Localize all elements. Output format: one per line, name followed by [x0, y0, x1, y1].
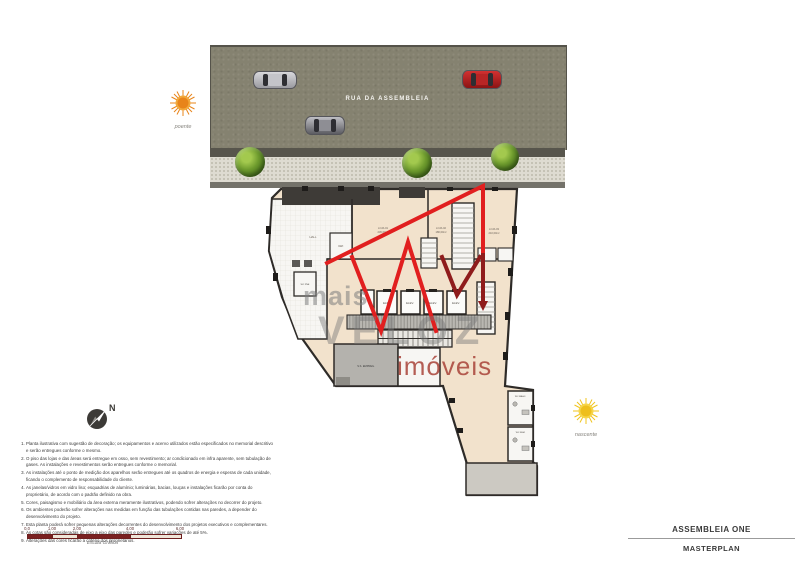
service-room-label: S.S. EMPREG. — [357, 364, 375, 368]
scale-tick: 4,00 — [126, 526, 134, 531]
sun-west-label: poente — [160, 124, 206, 130]
titleblock-project: ASSEMBLEIA ONE — [628, 525, 795, 534]
note-item: Planta ilustrativa com sugestão de decor… — [26, 441, 274, 455]
scale-segment — [77, 534, 132, 539]
room-small — [498, 248, 513, 261]
bench — [292, 260, 300, 267]
elevator-label: ELEV. — [429, 301, 437, 305]
equipment — [336, 377, 350, 385]
masterplan-sheet: RUA DA ASSEMBLEIA — [0, 0, 800, 564]
stair-shaft — [452, 203, 474, 269]
watermark-veloz: VELOZ — [318, 309, 486, 354]
car-red-icon — [462, 70, 502, 89]
note-item: As instalações até o ponto de medição do… — [26, 470, 274, 484]
scale-segment — [52, 534, 79, 539]
watermark-imoveis: imóveis — [397, 351, 492, 382]
svg-text:LOJA 01: LOJA 01 — [378, 226, 389, 230]
sun-east-icon — [563, 395, 609, 427]
stair-small — [421, 238, 437, 268]
bench — [304, 260, 312, 267]
svg-text:LOJA 03: LOJA 03 — [489, 227, 500, 231]
car-silver-icon — [253, 71, 297, 89]
elevator-label: ELEV. — [406, 301, 414, 305]
facade-band — [282, 187, 380, 205]
tree-icon — [491, 143, 519, 171]
annex-block — [466, 463, 537, 495]
street-name-label: RUA DA ASSEMBLEIA — [210, 96, 565, 102]
titleblock-sheet: MASTERPLAN — [628, 544, 795, 553]
sun-west-icon — [160, 87, 206, 119]
scale-segment — [130, 534, 182, 539]
north-label: N — [109, 403, 116, 413]
note-item: Os ambientes poderão sofrer alterações n… — [26, 507, 274, 521]
note-item: As janelas/vidros em vidro liso; esquadr… — [26, 485, 274, 499]
scale-caption: Escala Gráfica — [25, 541, 180, 546]
north-arrow: N — [82, 400, 122, 439]
hall-label: HALL — [310, 235, 317, 239]
tree-icon — [402, 148, 432, 178]
scale-segment — [27, 534, 54, 539]
scale-bar: 0,0 1,00 2,00 4,00 6,00 Escala Gráfica — [25, 526, 185, 548]
wc-masc-label: WC MASC. — [515, 395, 527, 398]
wc-fem-label: WC FEM. — [516, 432, 526, 434]
scale-tick: 1,00 — [48, 526, 56, 531]
tree-icon — [235, 147, 265, 177]
scale-tick: 0,0 — [24, 526, 30, 531]
sun-east: nascente — [563, 395, 609, 438]
svg-text:180,00m²: 180,00m² — [436, 230, 447, 234]
watermark-mais: mais — [303, 281, 369, 312]
street-block: RUA DA ASSEMBLEIA — [210, 45, 565, 188]
north-arrow-icon: N — [82, 400, 122, 434]
car-gray-icon — [305, 116, 345, 135]
dep-label: DEP. — [338, 245, 344, 248]
svg-text:210,00m²: 210,00m² — [489, 231, 500, 235]
sun-west: poente — [160, 87, 206, 130]
scale-tick: 2,00 — [73, 526, 81, 531]
note-item: Cores, paisagismo e mobiliário da área e… — [26, 500, 274, 507]
titleblock-divider — [628, 538, 795, 539]
note-item: O piso das lojas e das áreas será entreg… — [26, 456, 274, 470]
facade-band — [399, 187, 425, 198]
svg-text:LOJA 02: LOJA 02 — [436, 226, 447, 230]
scale-tick: 6,00 — [176, 526, 184, 531]
elevator-label: ELEV. — [452, 301, 460, 305]
sun-east-label: nascente — [563, 432, 609, 438]
